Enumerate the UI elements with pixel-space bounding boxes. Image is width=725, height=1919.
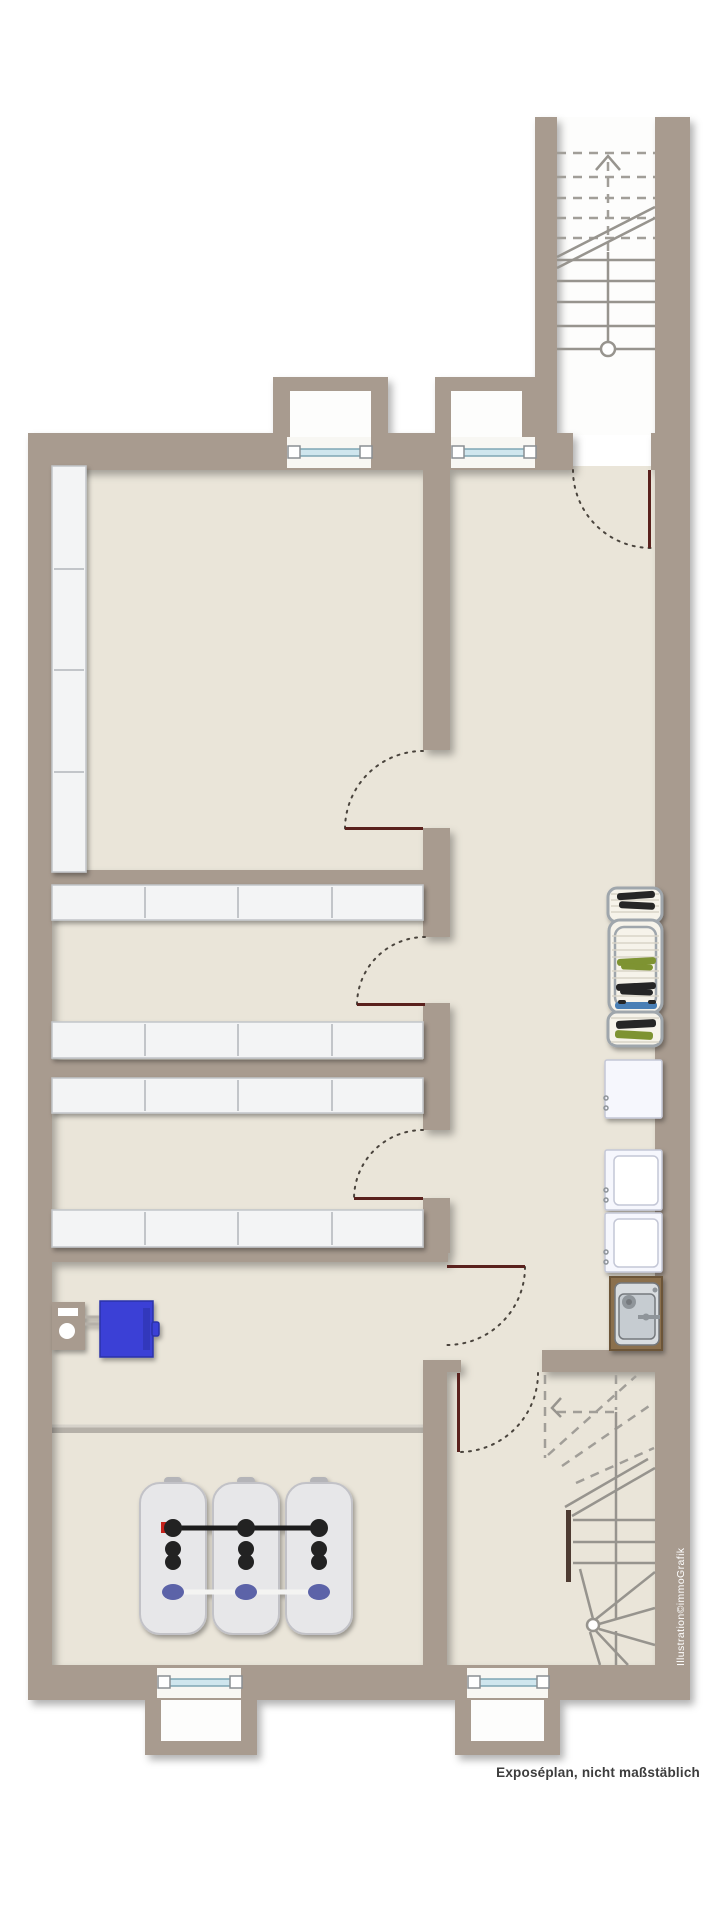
shelf-row-2: [52, 1022, 423, 1058]
appliance-1: [604, 1060, 662, 1118]
drying-rack-1: [608, 888, 662, 922]
laundry-item-black: [616, 982, 656, 996]
upper-stairwell-floor: [557, 117, 655, 435]
partition-wall-2: [52, 1060, 423, 1078]
stair-room-wall-left: [423, 1360, 447, 1665]
corridor-wall-segment-2: [423, 828, 450, 937]
stair-newel-post: [587, 1619, 599, 1631]
drying-rack-3: [608, 1012, 662, 1046]
partition-wall-3: [52, 1247, 448, 1262]
laundry-item-green: [617, 957, 656, 971]
outer-wall-bottom: [28, 1665, 690, 1700]
stair-spine-wall: [566, 1510, 571, 1582]
plan-caption: Exposéplan, nicht maßstäblich: [496, 1765, 700, 1780]
corridor-wall-segment-4: [423, 1198, 450, 1253]
window-top-left: [287, 437, 372, 468]
appliance-3: [604, 1213, 662, 1272]
window-top-right: [451, 437, 536, 468]
shelf-column-left: [52, 466, 86, 872]
stair-room-wall-top: [542, 1350, 655, 1372]
basement-floorplan: Illustration©immoGrafik Exposéplan, nich…: [0, 0, 725, 1919]
corridor-wall-segment-3: [423, 1003, 450, 1130]
window-bottom-right: [467, 1668, 549, 1698]
window-well-bottom-right: [455, 1700, 560, 1755]
drying-rack-2: [609, 920, 662, 1013]
oil-tanks: [140, 1477, 352, 1634]
shelf-row-1: [52, 885, 423, 920]
appliance-2: [604, 1150, 662, 1210]
window-well-bottom-left: [145, 1700, 257, 1755]
heating-unit: [52, 1301, 159, 1357]
stair-handrail-end: [601, 342, 615, 356]
window-bottom-left: [157, 1668, 242, 1698]
stair-room-wall-stub: [447, 1360, 461, 1372]
corridor-wall-segment-1: [423, 468, 450, 750]
floorplan-page: Illustration©immoGrafik Exposéplan, nich…: [0, 0, 725, 1919]
heating-pipe: [52, 1426, 447, 1429]
watermark-text: Illustration©immoGrafik: [675, 1547, 687, 1666]
partition-wall-1: [52, 870, 423, 885]
upper-stairwell-wall-left: [535, 117, 557, 433]
shelf-row-4: [52, 1210, 423, 1247]
window-well-top-right: [435, 377, 538, 437]
shelf-row-3: [52, 1078, 423, 1113]
window-well-top-left: [273, 377, 388, 437]
utility-sink: [610, 1277, 662, 1350]
outer-wall-left: [28, 433, 52, 1700]
